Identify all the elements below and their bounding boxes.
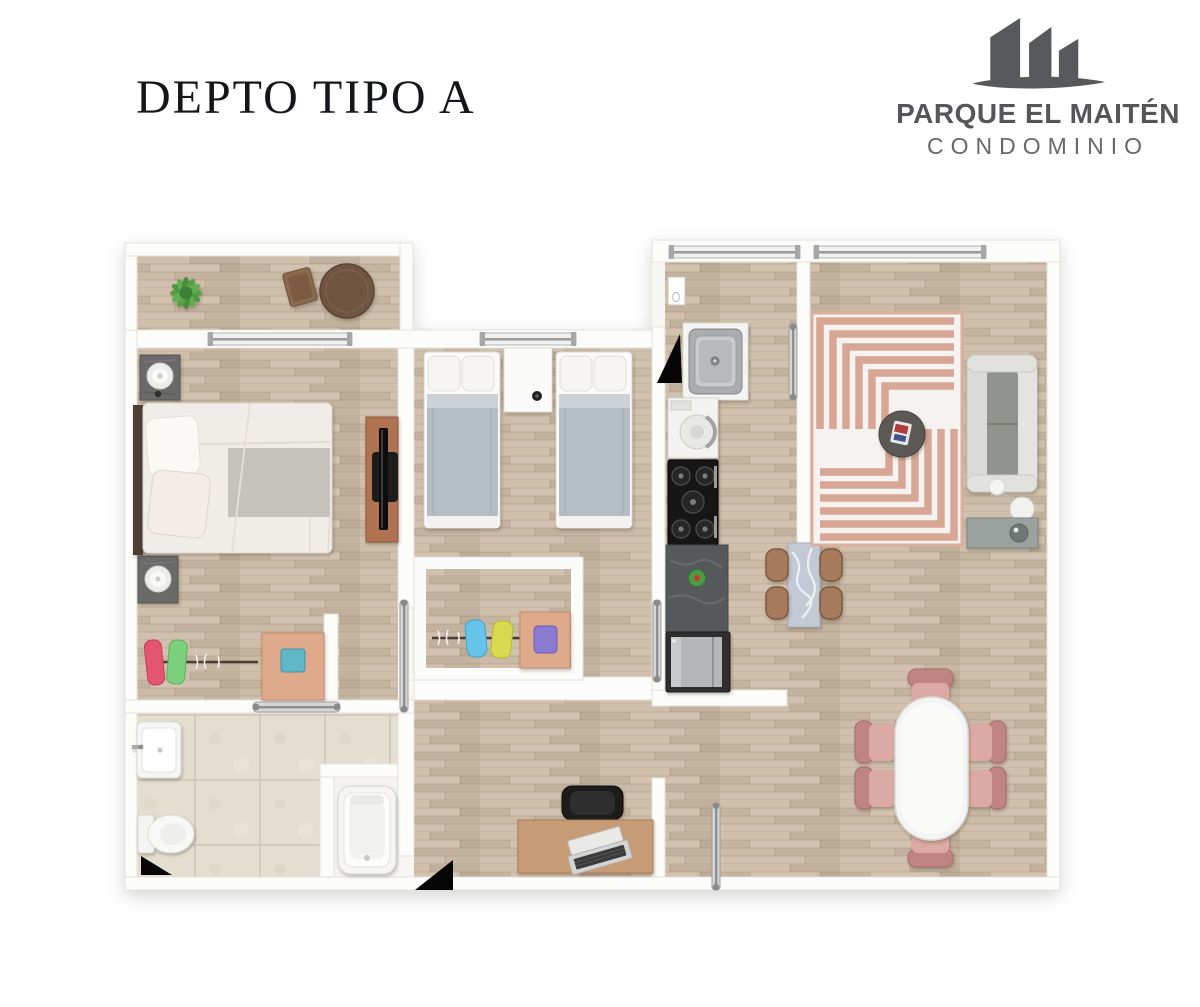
kitchen-sink	[683, 323, 748, 400]
single-bed-left	[424, 352, 500, 528]
floor-plan	[0, 0, 1200, 1007]
blue-garment	[464, 619, 487, 658]
yellow-garment	[490, 620, 514, 659]
master-window	[208, 332, 352, 346]
sofa	[967, 355, 1037, 492]
entry-door-leaf	[668, 277, 685, 305]
chair-right-2	[966, 767, 1006, 809]
ottoman	[879, 411, 925, 457]
nightstand-bottom	[138, 556, 178, 603]
master-door-slider	[400, 600, 408, 712]
single-bed-right	[556, 352, 632, 528]
toilet	[138, 815, 194, 853]
bedroom2-nightstand	[504, 348, 552, 412]
nightstand-top	[140, 355, 180, 400]
side-table	[967, 518, 1038, 548]
bedroom2-closet	[414, 557, 583, 680]
bedroom2-window	[480, 332, 576, 346]
office-chair	[562, 786, 623, 820]
fridge	[666, 632, 730, 692]
tv-console	[366, 417, 398, 542]
breakfast-bar	[788, 543, 820, 627]
purple-box	[534, 626, 557, 653]
green-garment	[166, 639, 188, 684]
kitchen-door-slider	[789, 324, 797, 400]
dining-door-leaf	[712, 803, 720, 890]
terrace-round-table	[320, 264, 374, 318]
kitchen-window	[669, 245, 800, 259]
bedroom2-door-slider	[653, 600, 661, 682]
washing-machine	[668, 398, 718, 458]
teal-box	[281, 649, 305, 672]
master-dresser	[262, 633, 324, 700]
floor-plan-page: { "page": { "background": "#ffffff" }, "…	[0, 0, 1200, 1007]
bathroom-sliding-door	[253, 702, 341, 712]
stone-counter	[666, 545, 728, 632]
washbasin	[132, 722, 181, 778]
double-bed	[133, 403, 332, 555]
bedroom2-dresser	[520, 612, 570, 668]
gas-stove	[668, 460, 718, 545]
chair-left-2	[855, 767, 895, 809]
living-window	[814, 245, 986, 259]
chair-right-1	[966, 721, 1006, 763]
bathtub	[338, 786, 396, 874]
chair-left-1	[855, 721, 895, 763]
oval-dining-table	[895, 697, 968, 840]
hall-floor-1	[352, 614, 398, 713]
